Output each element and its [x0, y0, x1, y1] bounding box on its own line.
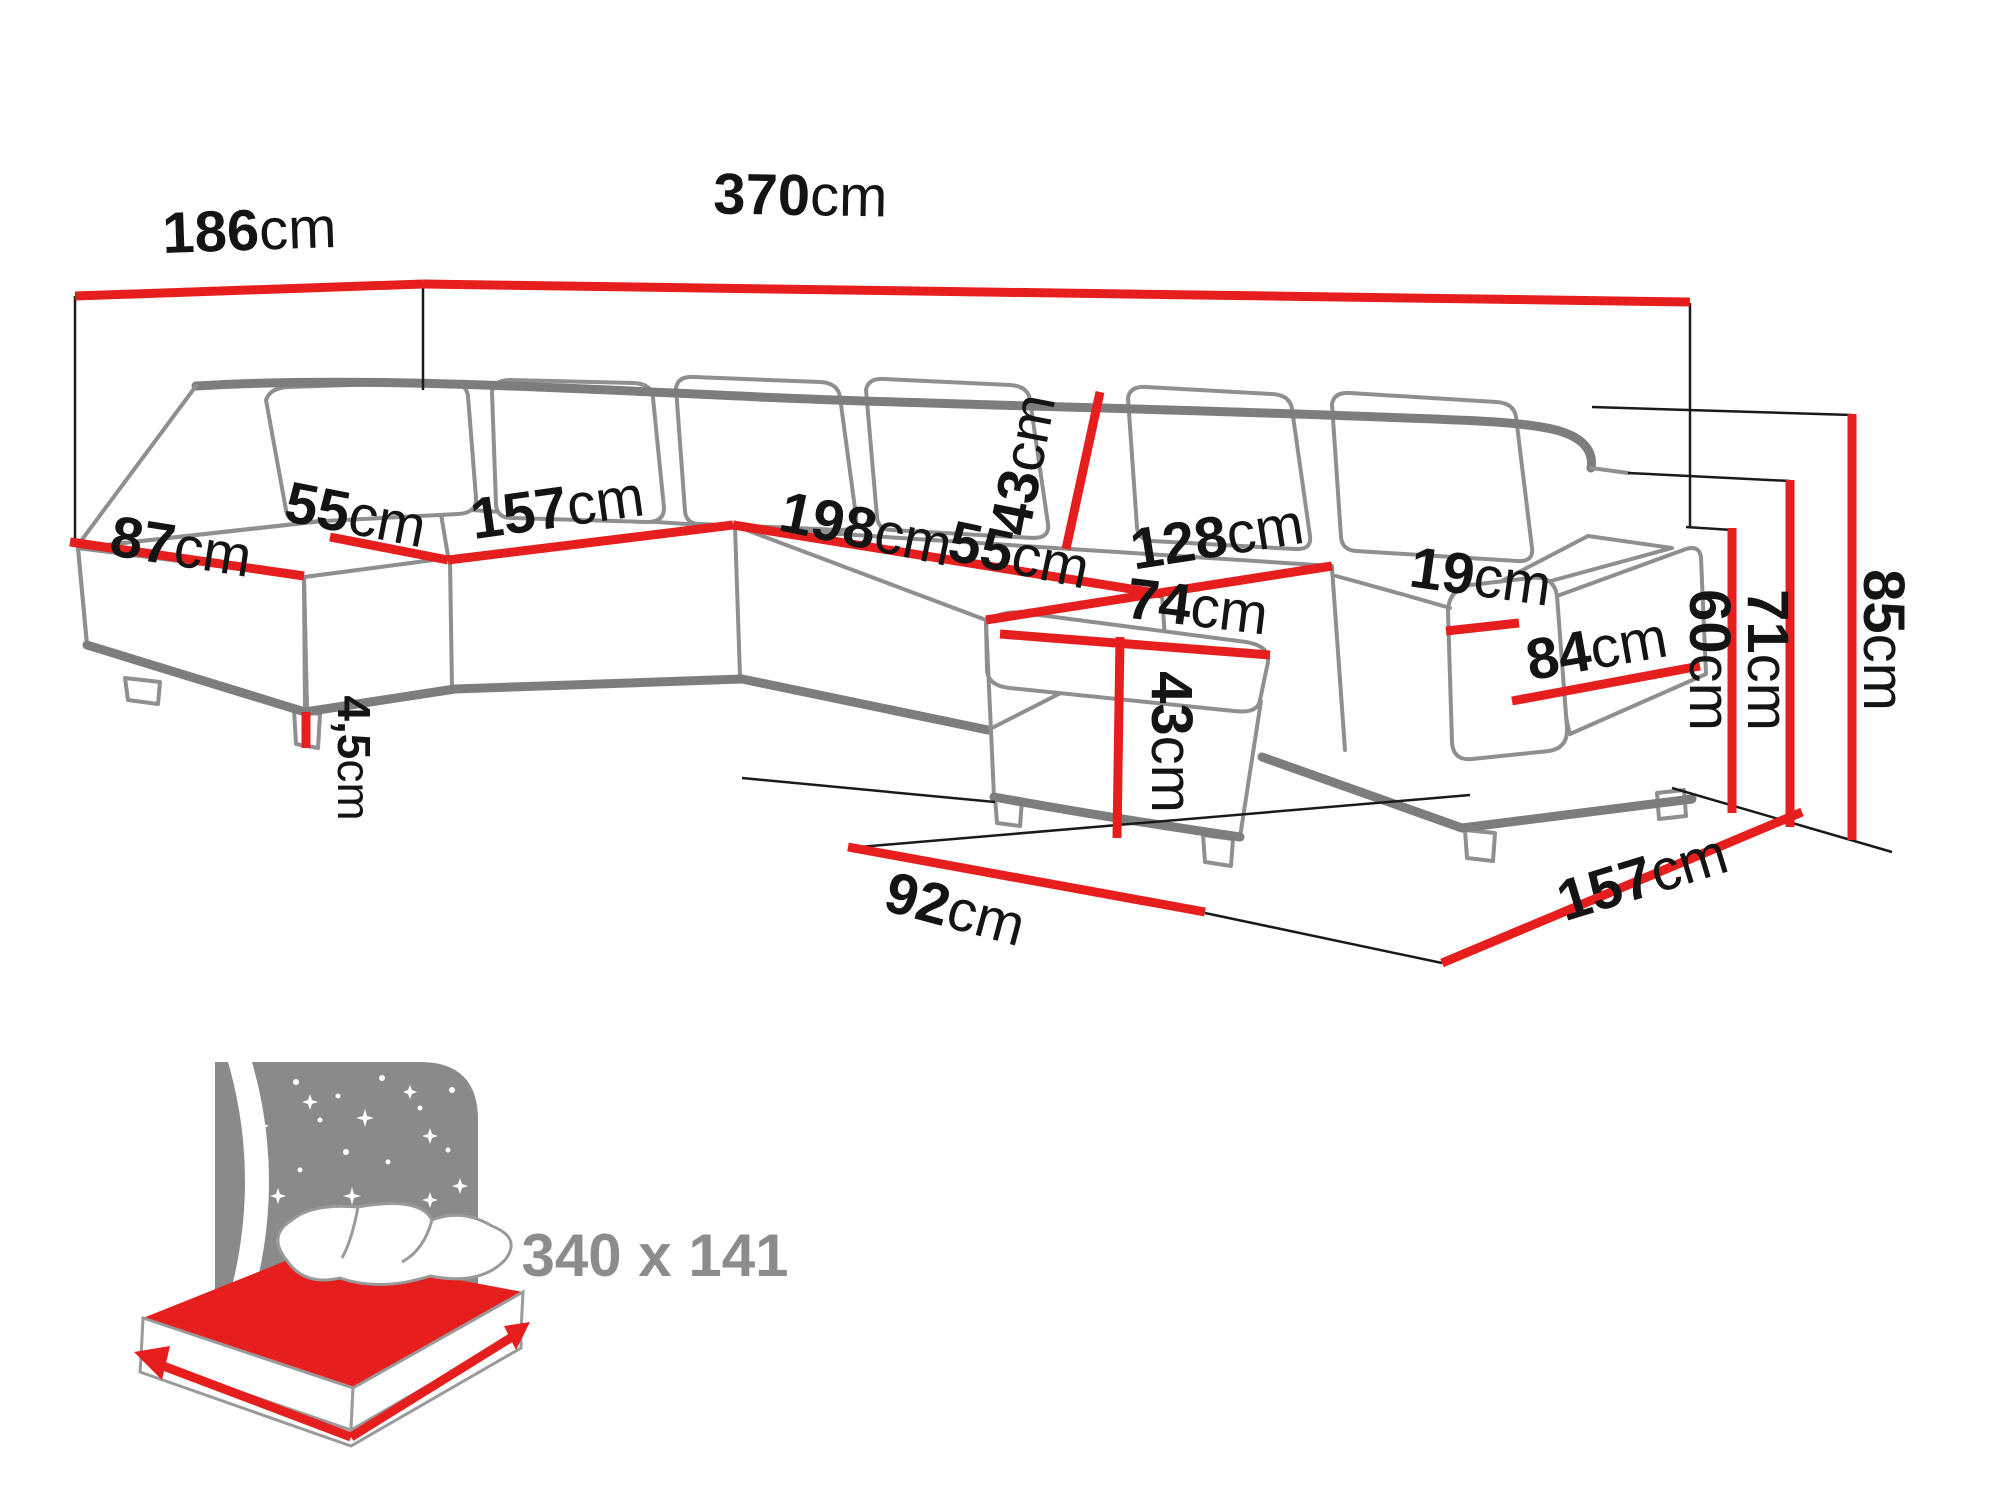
- dim-label-85cm: 85cm: [1851, 569, 1916, 711]
- dim-line-370: [423, 284, 1690, 302]
- sofa-leg: [1465, 830, 1495, 861]
- dim-label-4-5cm: 4,5cm: [328, 695, 380, 820]
- dim-label-43cm-front: 43cm: [1139, 671, 1204, 813]
- dim-label-71cm: 71cm: [1735, 589, 1800, 731]
- dim-line-186: [75, 284, 423, 296]
- right-seat-front-edge: [1332, 568, 1345, 750]
- dim-label-370cm: 370cm: [713, 161, 888, 229]
- dim-label-157cm-bottom: 157cm: [1550, 821, 1736, 934]
- ottoman-right-edge: [1240, 701, 1261, 837]
- sleeping-area-icon: 340 x 141: [134, 1062, 788, 1446]
- sofa-dimension-diagram: 186cm 370cm 87cm 55cm 157cm 198cm 55cm 4…: [0, 0, 2000, 1500]
- dim-label-60cm: 60cm: [1677, 589, 1742, 731]
- back-right-ledge: [1591, 468, 1628, 473]
- plinth-bottom-right: [1262, 757, 1692, 828]
- diagram-canvas: 186cm 370cm 87cm 55cm 157cm 198cm 55cm 4…: [0, 0, 2000, 1500]
- bed-size-label: 340 x 141: [522, 1222, 789, 1289]
- dim-line-43-back: [1066, 392, 1100, 549]
- front-face-seam-1: [450, 560, 452, 688]
- dim-label-186cm: 186cm: [161, 195, 337, 266]
- dim-line-43-front: [1117, 637, 1120, 838]
- sofa-leg: [125, 678, 160, 704]
